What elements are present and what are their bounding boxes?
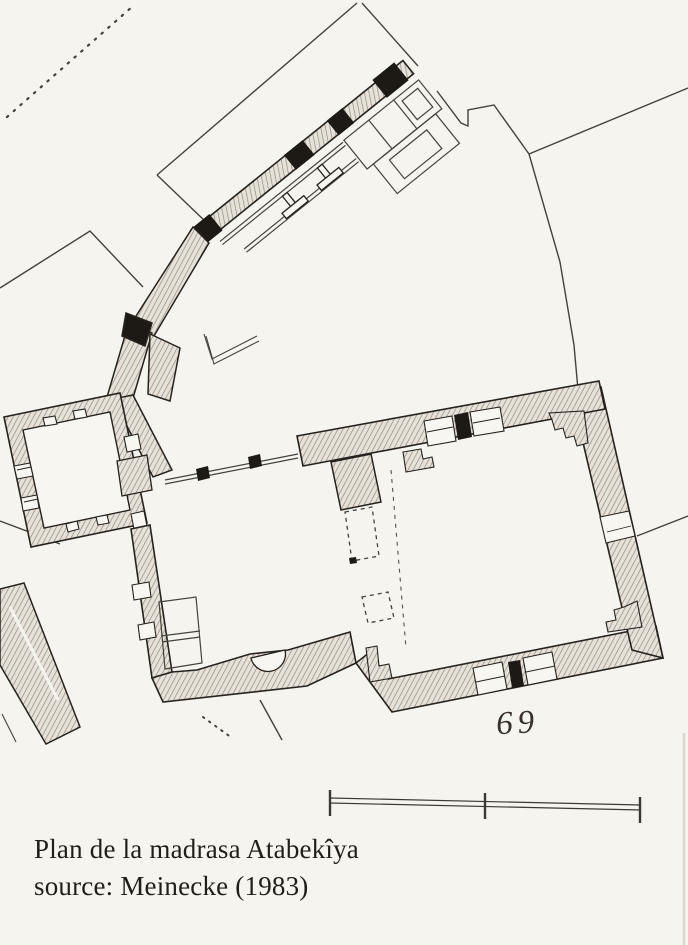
- boundary-line-to-wing: [157, 175, 207, 223]
- courtyard-mark: [349, 557, 357, 564]
- caption: Plan de la madrasa Atabekîya source: Mei…: [34, 831, 359, 905]
- scale-bar: [330, 790, 640, 823]
- caption-source: source: Meinecke (1983): [34, 868, 359, 905]
- thin-line-strip-end: [2, 714, 16, 742]
- caption-title: Plan de la madrasa Atabekîya: [34, 831, 359, 868]
- boundary-line-east-lower: [637, 516, 688, 536]
- boundary-line-east-upper: [529, 88, 688, 154]
- thin-line-south: [260, 700, 282, 740]
- scanned-plan-page: 69 Plan de la madrasa Atabekîya source: …: [0, 0, 688, 945]
- hall-south-wall: [356, 626, 663, 712]
- courtyard-north-arcade: [165, 454, 298, 484]
- floor-plan-figure: 69: [0, 0, 688, 945]
- hall-sw-steps: [366, 646, 392, 682]
- dotted-line-south: [203, 717, 232, 738]
- hall-north-wall: [297, 381, 605, 510]
- north-wing-arcade: [189, 57, 466, 309]
- south-wall: [152, 632, 356, 702]
- iwan-opening-line: [391, 470, 406, 648]
- detached-wall-strip: [0, 583, 80, 744]
- boundary-zigzag-east: [437, 91, 529, 154]
- dotted-boundary-line: [7, 6, 133, 117]
- boundary-line-nw: [157, 3, 357, 175]
- portico-corner-lines: [204, 334, 259, 364]
- left-room-east-pier: [117, 455, 152, 496]
- figure-number: 69: [495, 704, 540, 742]
- boundary-corner-west: [0, 231, 143, 288]
- boundary-line-ne: [362, 3, 418, 66]
- boundary-line-east-down: [529, 154, 578, 390]
- courtyard-west-wall: [131, 525, 202, 678]
- court-t-pier-stem: [331, 454, 381, 510]
